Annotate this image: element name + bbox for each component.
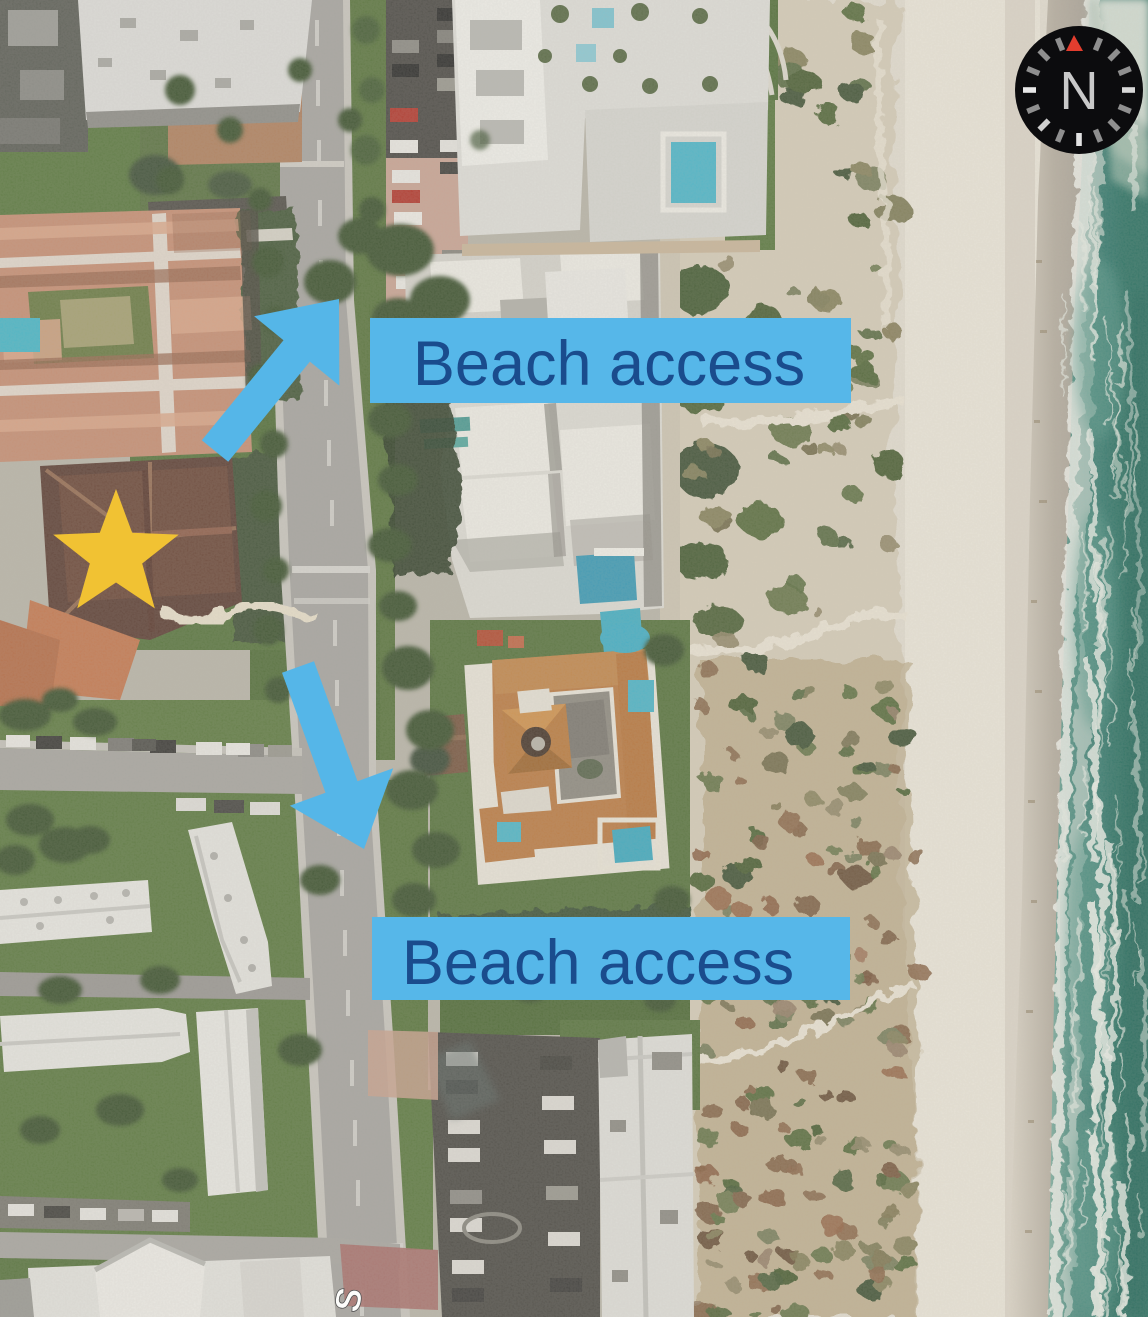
svg-text:Beach access: Beach access xyxy=(413,329,805,399)
svg-text:Beach access: Beach access xyxy=(402,928,794,998)
svg-text:N: N xyxy=(1060,61,1099,121)
